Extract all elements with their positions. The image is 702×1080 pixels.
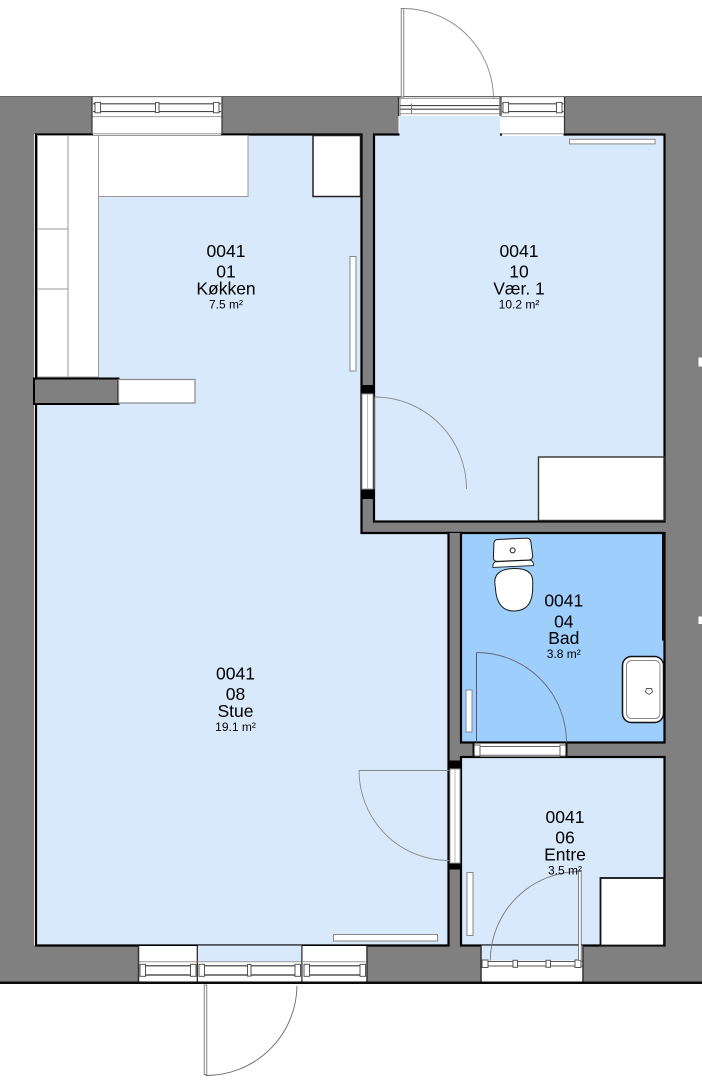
svg-text:Bad: Bad (548, 628, 579, 648)
svg-text:10.2 m²: 10.2 m² (499, 297, 540, 311)
svg-text:3.8 m²: 3.8 m² (547, 647, 581, 661)
svg-text:0041: 0041 (207, 241, 246, 261)
svg-text:0041: 0041 (500, 241, 539, 261)
svg-text:Stue: Stue (218, 701, 254, 721)
svg-text:7.5 m²: 7.5 m² (209, 297, 243, 311)
svg-text:0041: 0041 (544, 591, 583, 611)
svg-text:0041: 0041 (546, 807, 585, 827)
svg-text:Køkken: Køkken (196, 278, 255, 298)
svg-text:19.1 m²: 19.1 m² (215, 720, 256, 734)
svg-text:3.5 m²: 3.5 m² (548, 863, 582, 877)
svg-text:0041: 0041 (216, 663, 255, 683)
svg-text:Entre: Entre (544, 844, 586, 864)
svg-text:Vær. 1: Vær. 1 (493, 278, 545, 298)
